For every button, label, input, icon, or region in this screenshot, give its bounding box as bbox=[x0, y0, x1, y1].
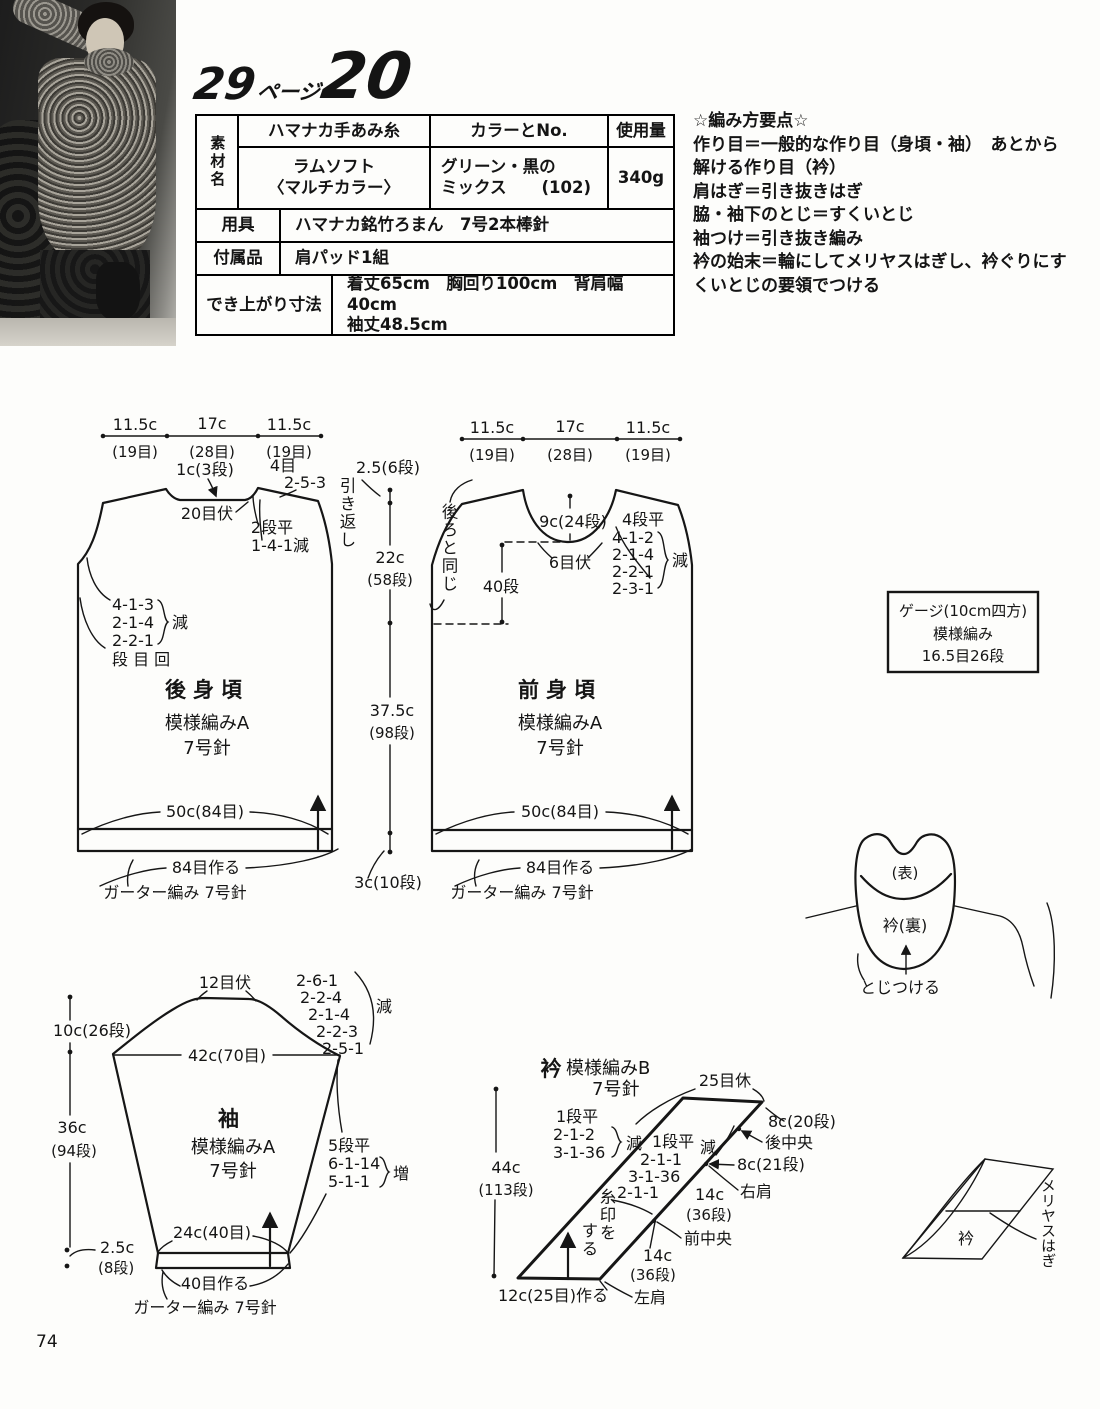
back-shortrow-rate: 2-5-3 bbox=[284, 473, 326, 492]
hem-band-dim: 3c(10段) bbox=[354, 873, 422, 892]
back-shoulder-sts: (19目) bbox=[112, 443, 158, 461]
collar-seg-front-rows: (36段) bbox=[686, 1206, 732, 1224]
sleeve-cuff-curl bbox=[70, 1250, 95, 1256]
front-piece-name: 前身頃 bbox=[518, 678, 602, 702]
gauge-pattern: 模様編み bbox=[933, 625, 993, 643]
body-length-cm: 37.5c bbox=[370, 701, 414, 720]
sleeve-inc-brace bbox=[380, 1157, 389, 1187]
sleeve-caston: 40目作る bbox=[181, 1274, 249, 1293]
collar-leftshoulder-pointer bbox=[605, 1282, 632, 1297]
back-stitch-pattern: 模様編みA bbox=[165, 713, 250, 734]
front-dec-label: 減 bbox=[672, 551, 688, 570]
sleeve-cap-height: 10c(26段) bbox=[53, 1021, 131, 1040]
collar-rest-sts: 25目休 bbox=[699, 1071, 751, 1090]
collar-front-center-label: 前中央 bbox=[684, 1229, 732, 1248]
front-neckbo-pointer-r bbox=[588, 543, 602, 558]
collar-right-shoulder-label: 右肩 bbox=[740, 1182, 772, 1201]
front-neck-width: 17c bbox=[555, 417, 584, 436]
front-neck-sts: (28目) bbox=[547, 446, 593, 464]
back-piece-name: 後身頃 bbox=[165, 678, 249, 702]
shoulder-slope-curl bbox=[362, 480, 380, 496]
back-armhole-dec2: 2-1-4 bbox=[112, 613, 154, 632]
armhole-depth-rows: (58段) bbox=[367, 571, 413, 589]
back-shoulder-width: 11.5c bbox=[113, 415, 157, 434]
front-neck-flat: 4段平 bbox=[622, 510, 664, 529]
sleeve-top-width: 42c(70目) bbox=[188, 1046, 266, 1065]
sleeve-cap-bindoff: 12目伏 bbox=[199, 973, 251, 992]
collar-length-rows: (113段) bbox=[478, 1181, 533, 1199]
attach-sew-curl bbox=[858, 954, 864, 980]
back-caston: 84目作る bbox=[172, 858, 240, 877]
back-neck-dec-rate: 1-4-1減 bbox=[251, 536, 309, 555]
collar-mark-pointer bbox=[612, 1200, 652, 1214]
back-neck-bindoff: 20目伏 bbox=[181, 504, 233, 523]
collar-inner-dec-label: 減 bbox=[700, 1138, 716, 1157]
collar-caston: 12c(25目)作る bbox=[498, 1286, 608, 1305]
armhole-depth-cm: 22c bbox=[375, 548, 404, 567]
collar-frontcenter-pointer bbox=[657, 1222, 681, 1238]
collar-outer-dec2: 3-1-36 bbox=[553, 1143, 605, 1162]
attach-left-shoulder bbox=[806, 906, 856, 918]
sleeve-cap-dec5: 2-5-1 bbox=[322, 1039, 364, 1058]
shoulder-slope-dim: 2.5(6段) bbox=[356, 458, 420, 477]
collar-yarn-mark-label-b: する bbox=[576, 1222, 600, 1258]
front-hem-width: 50c(84目) bbox=[521, 802, 599, 821]
collar-left-shoulder-label: 左肩 bbox=[634, 1288, 666, 1307]
front-dec-brace bbox=[658, 532, 668, 588]
collar-seg-front-dim: 14c bbox=[695, 1185, 724, 1204]
attach-right-shoulder bbox=[955, 906, 1034, 986]
fold-seam-pointer bbox=[990, 1213, 1036, 1239]
collar-outer-brace bbox=[612, 1127, 621, 1157]
schematic-diagrams: 11.5c (19目) 17c (28目) 11.5c (19目) 1c(3段)… bbox=[0, 0, 1100, 1409]
collar-seg2-pointer bbox=[710, 1164, 734, 1165]
fold-seam-vertical-label: メリヤスはぎ bbox=[1038, 1178, 1059, 1268]
collar-inner-flat: 1段平 bbox=[652, 1132, 694, 1151]
back-neck-width: 17c bbox=[197, 414, 226, 433]
back-garter-label: ガーター編み 7号針 bbox=[103, 883, 246, 902]
back-neck-sts: (28目) bbox=[189, 443, 235, 461]
front-neck-bindoff: 6目伏 bbox=[549, 553, 591, 572]
collar-outer-flat: 1段平 bbox=[556, 1107, 598, 1126]
collar-piece-name: 衿 bbox=[541, 1057, 562, 1081]
front-caston: 84目作る bbox=[526, 858, 594, 877]
collar-rest-arc-r bbox=[753, 1089, 764, 1101]
back-armhole-dec3: 2-2-1 bbox=[112, 631, 154, 650]
back-dec-legend: 段 目 回 bbox=[112, 650, 170, 669]
front-neckbo-pointer-l bbox=[538, 543, 552, 558]
front-shoulder-width: 11.5c bbox=[470, 418, 514, 437]
collar-length-cm: 44c bbox=[491, 1158, 520, 1177]
attach-sew-label: とじつける bbox=[860, 978, 940, 997]
collar-needle: 7号針 bbox=[592, 1079, 639, 1100]
sleeve-cuff-arc-l bbox=[158, 1241, 172, 1252]
fold-collar-label: 衿 bbox=[958, 1229, 974, 1248]
front-shoulder-sts-2: (19目) bbox=[625, 446, 671, 464]
front-40rows-label: 40段 bbox=[483, 577, 519, 596]
collar-fold-sketch: 衿 bbox=[903, 1159, 1053, 1259]
sleeve-inc1: 6-1-14 bbox=[328, 1154, 380, 1173]
back-neck-depth: 1c(3段) bbox=[176, 460, 234, 479]
collar-diagram: 衿 模様編みB 7号針 44c (113段) 25目休 1段平 2-1-2 3-… bbox=[478, 1057, 836, 1307]
attach-right-arm-line bbox=[1047, 903, 1054, 998]
sleeve-piece-name: 袖 bbox=[218, 1107, 246, 1131]
gauge-title: ゲージ(10cm四方) bbox=[899, 602, 1027, 620]
magazine-page: 29 ページ 20 素材名 ハマナカ手あみ糸 カラーとNo. 使用量 ラムソフト… bbox=[0, 0, 1100, 1409]
collar-stitch-pattern: 模様編みB bbox=[566, 1058, 650, 1079]
front-neck-depth: 9c(24段) bbox=[539, 512, 607, 531]
back-shortrow-vertical-label: 引き返し bbox=[334, 477, 358, 549]
collar-seg-front2-dim: 14c bbox=[643, 1246, 672, 1265]
gauge-value: 16.5目26段 bbox=[922, 647, 1005, 665]
back-armhole-dec1: 4-1-3 bbox=[112, 595, 154, 614]
sleeve-cuff-width: 24c(40目) bbox=[173, 1223, 251, 1242]
front-body-diagram: 11.5c (19目) 17c (28目) 11.5c (19目) 9c(24段… bbox=[430, 417, 692, 902]
page-number: 74 bbox=[36, 1332, 58, 1352]
sleeve-stitch-pattern: 模様編みA bbox=[191, 1137, 276, 1158]
front-same-as-back-label: 後ろと同じ bbox=[436, 503, 460, 593]
collar-back-center-label: 後中央 bbox=[765, 1133, 813, 1152]
collar-seg-back-dim: 8c(20段) bbox=[768, 1112, 836, 1131]
collar-attach-sketch: (表) 衿(裏) とじつける bbox=[806, 834, 1054, 998]
back-dec-label: 減 bbox=[172, 613, 188, 632]
body-length-rows: (98段) bbox=[369, 724, 415, 742]
collar-inner-dec3: 2-1-1 bbox=[617, 1183, 659, 1202]
sleeve-length-rows: (94段) bbox=[51, 1142, 97, 1160]
attach-front-side-label: (表) bbox=[892, 864, 919, 882]
sleeve-cuff-height-cm: 2.5c bbox=[100, 1238, 134, 1257]
sleeve-inc-pointer-top bbox=[337, 1060, 342, 1132]
sleeve-garter-label: ガーター編み 7号針 bbox=[133, 1298, 276, 1317]
front-neck-dec4: 2-3-1 bbox=[612, 579, 654, 598]
back-armhole-pointer2 bbox=[80, 598, 105, 648]
back-width-arc-r bbox=[250, 812, 328, 834]
attach-collar-outline bbox=[855, 834, 955, 969]
collar-seg-front2-rows: (36段) bbox=[630, 1266, 676, 1284]
back-armhole-pointer bbox=[87, 558, 110, 600]
sleeve-dec-label: 減 bbox=[376, 997, 392, 1016]
back-width-arc-l bbox=[82, 812, 160, 834]
sleeve-caston-arc-l bbox=[162, 1270, 180, 1286]
sleeve-needle: 7号針 bbox=[209, 1161, 256, 1182]
collar-seg-shoulder-dim: 8c(21段) bbox=[737, 1155, 805, 1174]
back-hem-width: 50c(84目) bbox=[166, 802, 244, 821]
front-stitch-pattern: 模様編みA bbox=[518, 713, 603, 734]
sleeve-inc-flat: 5段平 bbox=[328, 1136, 370, 1155]
sleeve-inc2: 5-1-1 bbox=[328, 1172, 370, 1191]
attach-collar-back-label: 衿(裏) bbox=[883, 916, 928, 935]
collar-outer-dec1: 2-1-2 bbox=[553, 1125, 595, 1144]
sleeve-inc-label: 増 bbox=[393, 1164, 409, 1183]
sleeve-diagram: 42c(70目) 12目伏 2-6-1 2-2-4 2-1-4 2-2-3 2-… bbox=[51, 971, 409, 1317]
back-shoulder-width-2: 11.5c bbox=[267, 415, 311, 434]
back-neckbo-pointer bbox=[236, 502, 248, 512]
front-shoulder-width-2: 11.5c bbox=[626, 418, 670, 437]
back-dec-brace bbox=[158, 600, 168, 644]
back-neck-depth-arrow bbox=[208, 479, 216, 496]
front-shoulder-sts: (19目) bbox=[469, 446, 515, 464]
sleeve-length-cm: 36c bbox=[57, 1118, 86, 1137]
front-same-arc bbox=[450, 480, 472, 502]
front-needle: 7号針 bbox=[536, 738, 583, 759]
front-garter-label: ガーター編み 7号針 bbox=[450, 883, 593, 902]
back-needle: 7号針 bbox=[183, 738, 230, 759]
sleeve-cuff-height-rows: (8段) bbox=[98, 1259, 134, 1277]
gauge-box: ゲージ(10cm四方) 模様編み 16.5目26段 bbox=[888, 592, 1038, 672]
collar-frontcenter-tick bbox=[650, 1222, 655, 1248]
back-body-diagram: 11.5c (19目) 17c (28目) 11.5c (19目) 1c(3段)… bbox=[78, 414, 338, 902]
center-dimension-column: 2.5(6段) 22c (58段) 37.5c (98段) 3c(10段) bbox=[354, 458, 422, 892]
collar-backcenter-pointer bbox=[742, 1131, 762, 1142]
